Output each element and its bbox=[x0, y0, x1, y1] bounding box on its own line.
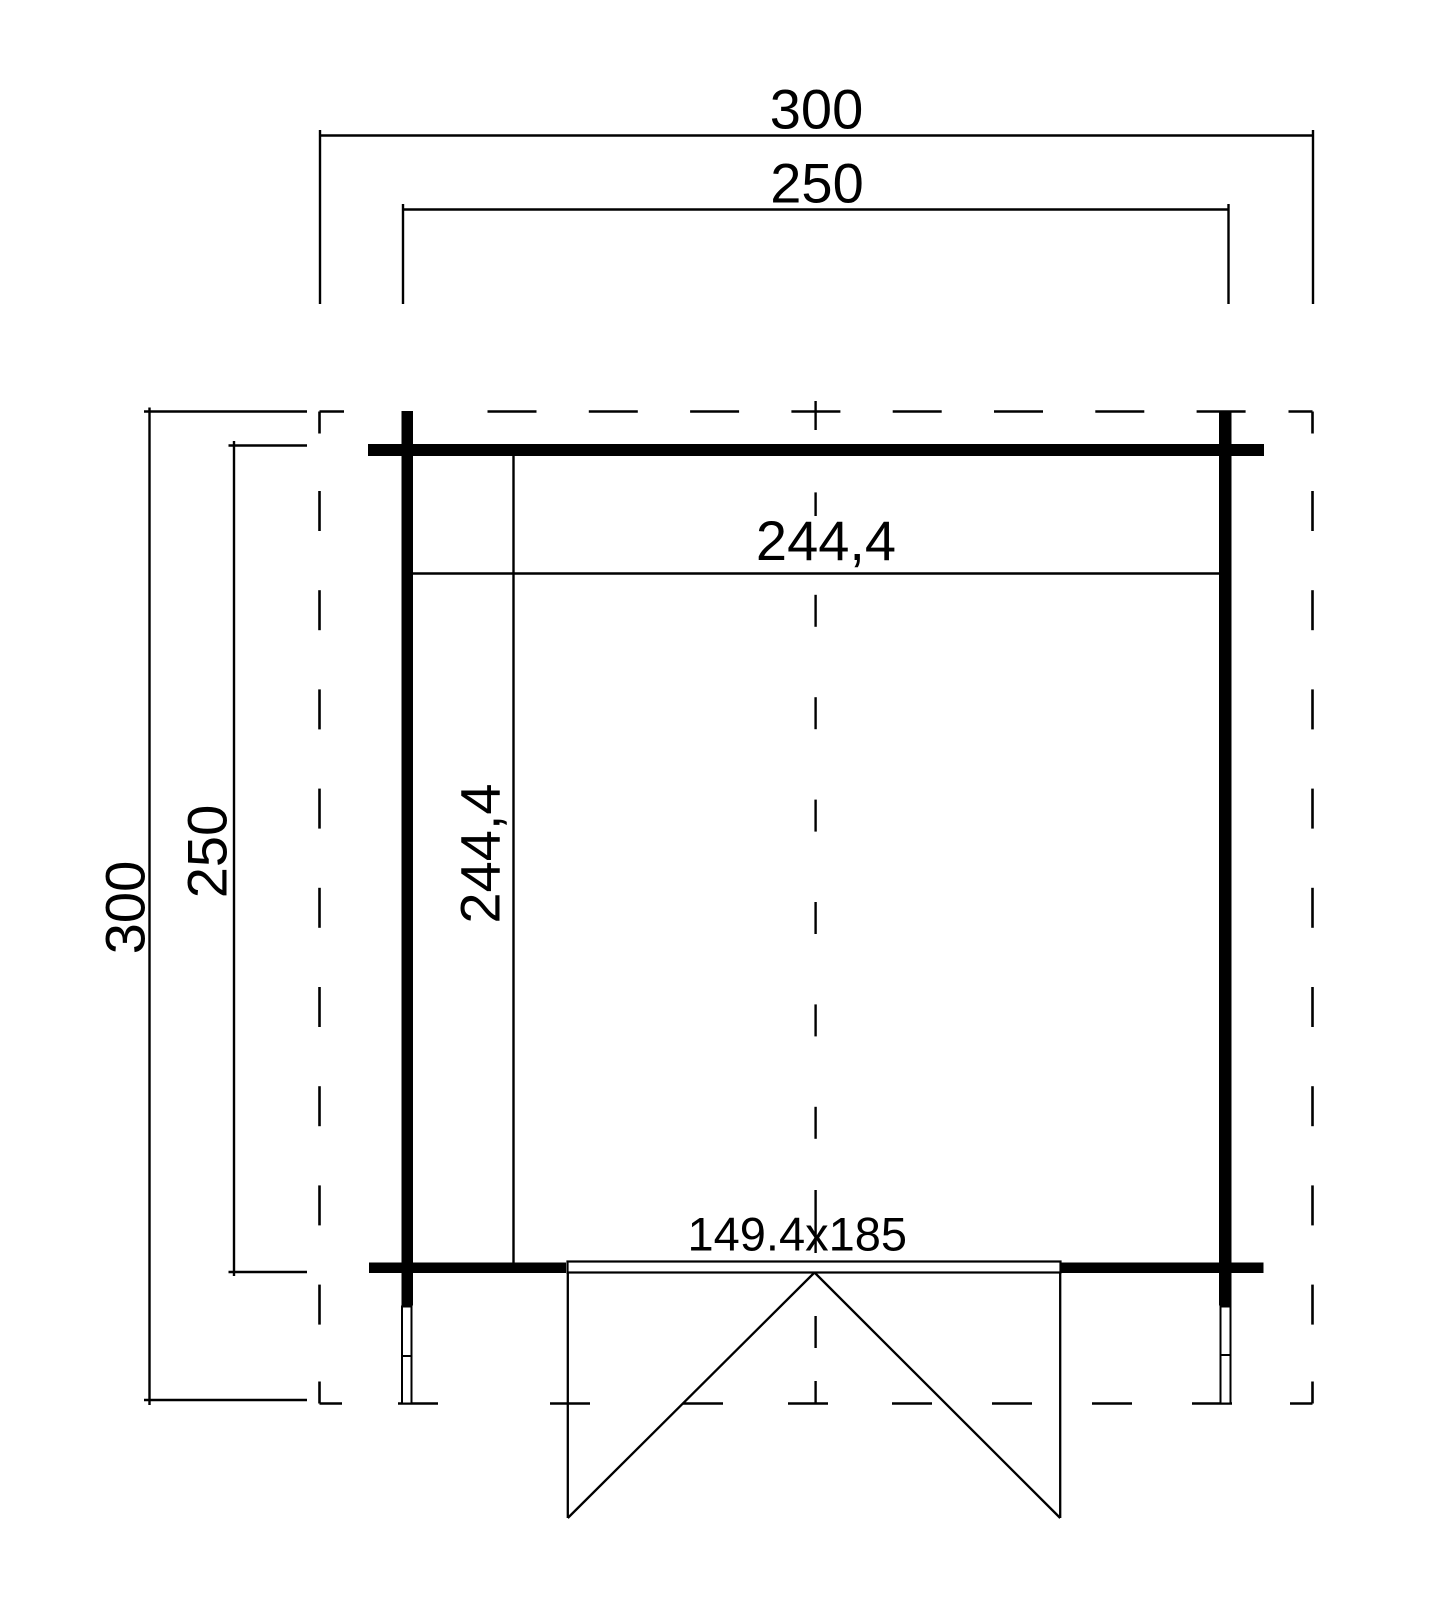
svg-text:250: 250 bbox=[176, 805, 239, 898]
svg-text:244,4: 244,4 bbox=[449, 783, 512, 923]
svg-text:300: 300 bbox=[770, 78, 863, 141]
svg-text:300: 300 bbox=[94, 861, 157, 954]
svg-text:244,4: 244,4 bbox=[756, 509, 896, 572]
svg-text:149.4x185: 149.4x185 bbox=[688, 1208, 908, 1261]
svg-text:250: 250 bbox=[770, 152, 863, 215]
